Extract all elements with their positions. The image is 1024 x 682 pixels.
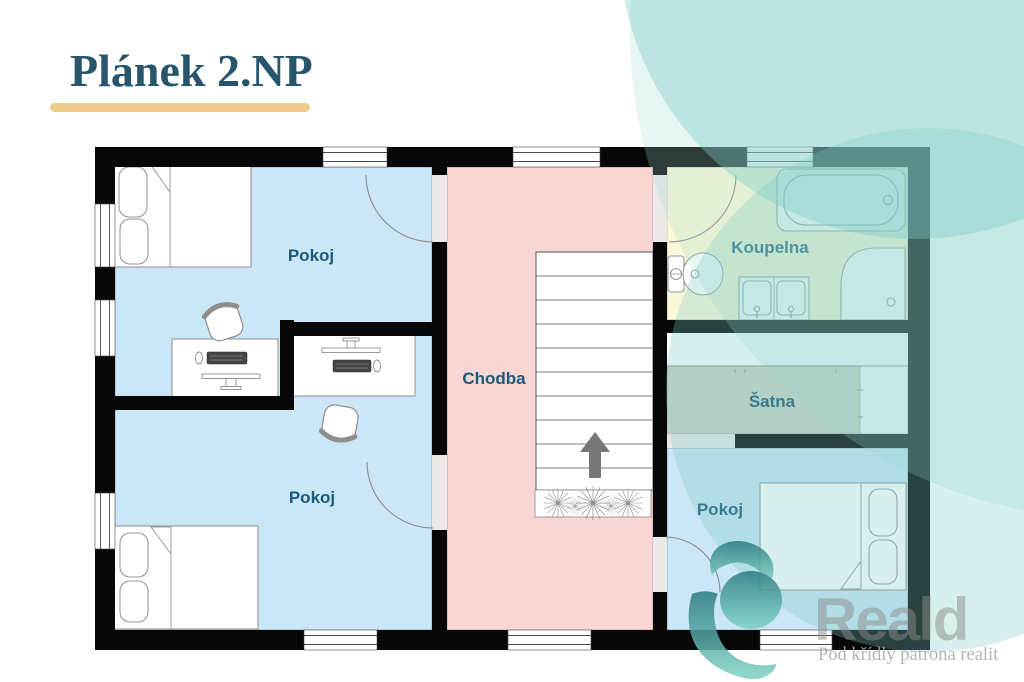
wall-segment bbox=[387, 147, 513, 167]
watermark-brand: Reald bbox=[814, 586, 967, 653]
wall-segment bbox=[95, 147, 323, 167]
mouse-icon bbox=[374, 360, 381, 372]
stairs-icon bbox=[536, 252, 653, 490]
wall-segment bbox=[95, 147, 115, 204]
bed-icon bbox=[113, 160, 251, 267]
wall-segment bbox=[432, 167, 447, 175]
window bbox=[513, 147, 600, 167]
desk-icon bbox=[288, 334, 415, 396]
wall-segment bbox=[377, 630, 508, 650]
desk-icon bbox=[172, 339, 278, 397]
door-opening bbox=[432, 455, 447, 530]
wall-segment bbox=[432, 242, 447, 455]
wall-segment bbox=[95, 267, 115, 300]
wall-segment bbox=[95, 356, 115, 493]
keyboard-icon bbox=[333, 360, 371, 372]
room-label-pokoj-top-left: Pokoj bbox=[288, 246, 334, 265]
floor-plan-page: Plánek 2.NP bbox=[0, 0, 1024, 682]
room-label-chodba: Chodba bbox=[462, 369, 526, 388]
window bbox=[95, 493, 115, 549]
window bbox=[304, 630, 377, 650]
mouse-icon bbox=[196, 352, 203, 364]
watermark-tagline: Pod křídly patrona realit bbox=[818, 645, 999, 665]
window bbox=[323, 147, 387, 167]
wall-segment bbox=[115, 396, 294, 410]
wall-segment bbox=[95, 549, 115, 650]
window bbox=[95, 204, 115, 267]
wall-segment bbox=[432, 530, 447, 630]
bed-icon bbox=[113, 526, 258, 629]
wall-segment bbox=[653, 242, 667, 537]
room-label-pokoj-bottom-left: Pokoj bbox=[289, 488, 335, 507]
window bbox=[95, 300, 115, 356]
wall-segment bbox=[591, 630, 760, 650]
wall-segment bbox=[653, 592, 667, 630]
title-underline bbox=[50, 103, 310, 112]
office-chair-icon bbox=[320, 403, 359, 442]
keyboard-icon bbox=[207, 352, 247, 364]
wall-segment bbox=[95, 630, 304, 650]
doormat-icon bbox=[535, 486, 651, 520]
window bbox=[508, 630, 591, 650]
door-opening bbox=[653, 537, 667, 592]
page-header: Plánek 2.NP bbox=[50, 45, 313, 112]
page-title: Plánek 2.NP bbox=[70, 45, 313, 96]
door-opening bbox=[432, 175, 447, 242]
wall-segment bbox=[280, 322, 432, 336]
